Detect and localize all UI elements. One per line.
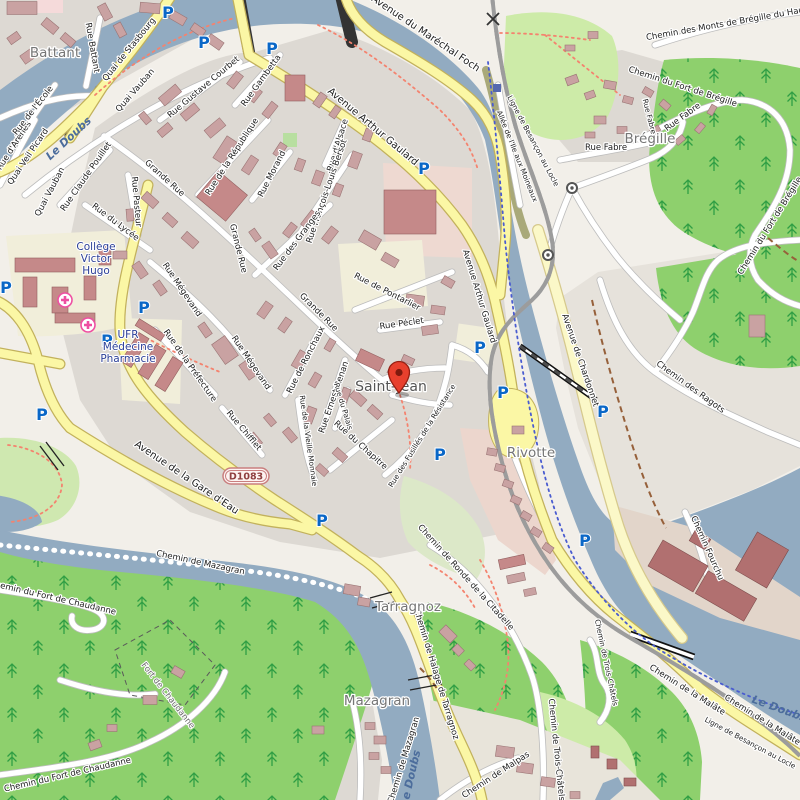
building — [591, 746, 599, 758]
map-canvas[interactable]: PPPPPPPPPPPPPP D1083 Rue BattantQuai de … — [0, 0, 800, 800]
building — [23, 277, 37, 307]
parking-icon: P — [418, 159, 430, 178]
parking-icon: P — [579, 531, 591, 550]
building — [312, 726, 324, 734]
parking-icon: P — [138, 298, 150, 317]
building — [570, 792, 580, 799]
place-label-mazagran: Mazagran — [344, 693, 410, 709]
building — [365, 723, 375, 730]
city-map[interactable]: PPPPPPPPPPPPPP D1083 Rue BattantQuai de … — [0, 0, 800, 800]
parking-icon: P — [36, 405, 48, 424]
building — [369, 753, 379, 760]
building — [285, 75, 305, 101]
building — [594, 116, 606, 124]
building — [512, 426, 524, 434]
place-label-bregille: Brégille — [625, 131, 676, 147]
building — [381, 767, 391, 774]
building — [357, 597, 370, 607]
route-badge-d1083: D1083 — [223, 468, 269, 484]
building — [421, 324, 438, 335]
street-label-rue_fabre: Rue Fabre — [585, 143, 627, 153]
building — [486, 448, 497, 457]
hospital-icon — [58, 293, 72, 307]
parking-icon: P — [198, 33, 210, 52]
parking-icon: P — [0, 278, 12, 297]
building — [374, 736, 386, 744]
building — [495, 745, 514, 758]
place-label-tarragnoz: Tarragnoz — [374, 599, 441, 615]
building — [607, 759, 617, 769]
poi-label-ufr_l2: Médecine — [103, 341, 153, 353]
parking-icon: P — [316, 511, 328, 530]
building — [565, 45, 575, 51]
poi-label-ufr_l3: Pharmacie — [100, 353, 155, 365]
poi-label-college_l1: Collège — [76, 241, 115, 253]
building — [624, 778, 636, 786]
place-label-battant: Battant — [30, 45, 80, 61]
building — [143, 696, 157, 705]
parking-icon: P — [497, 383, 509, 402]
parking-icon: P — [474, 338, 486, 357]
building — [749, 315, 765, 337]
building — [603, 80, 616, 90]
building — [140, 2, 161, 14]
station-icon — [567, 183, 577, 193]
poi-label-college_l2: Victor — [81, 253, 112, 265]
building — [84, 276, 96, 300]
building — [384, 190, 436, 234]
parking-icon: P — [434, 445, 446, 464]
poi-label-ufr_l1: UFR — [117, 329, 138, 341]
building — [588, 32, 598, 39]
building — [585, 132, 595, 138]
parking-icon: P — [162, 3, 174, 22]
building — [431, 305, 446, 315]
building — [15, 258, 75, 272]
hospital-icon — [81, 318, 95, 332]
rail-building — [493, 84, 501, 92]
building — [107, 725, 117, 732]
place-label-rivotte: Rivotte — [507, 445, 555, 461]
station-icon — [543, 250, 553, 260]
poi-label-college_l3: Hugo — [82, 265, 110, 277]
route-ref-text: D1083 — [229, 472, 263, 483]
building — [540, 777, 555, 788]
building — [7, 2, 37, 15]
